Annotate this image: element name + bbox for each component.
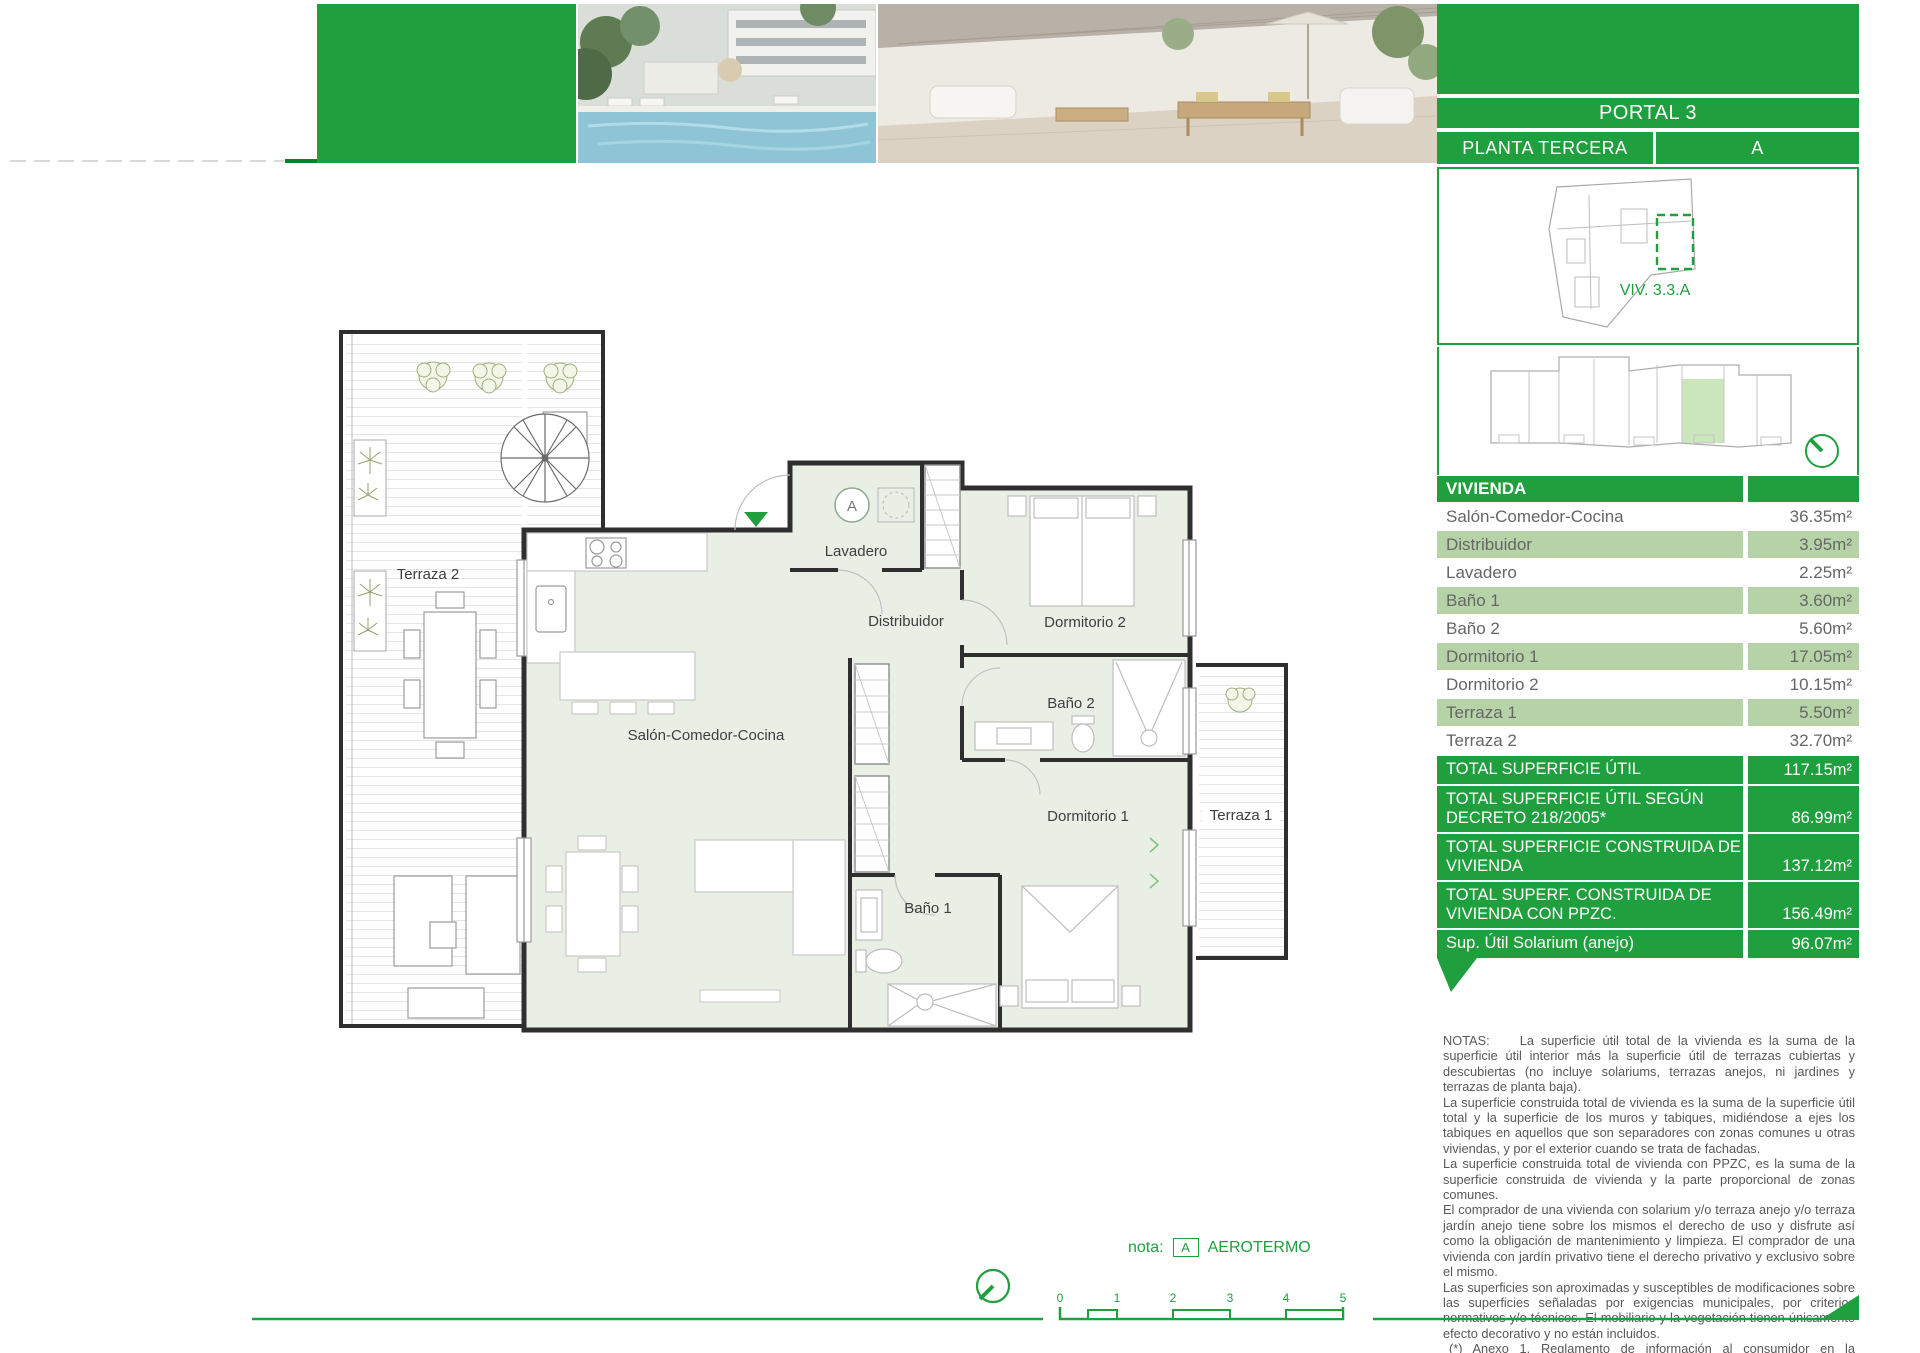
photo-pool-exterior [578, 4, 876, 163]
table-tail-shape [1437, 958, 1477, 992]
window [1183, 540, 1196, 926]
notes-paragraph: La superficie construida total de vivien… [1443, 1156, 1855, 1202]
floor-plan: A [330, 320, 1300, 1080]
label-salon: Salón-Comedor-Cocina [628, 727, 785, 744]
photo-window-row [736, 38, 866, 46]
total-label: TOTAL SUPERFICIE ÚTIL SEGÚN DECRETO 218/… [1437, 786, 1743, 832]
fine-print-cap [285, 159, 317, 163]
total-label: TOTAL SUPERF. CONSTRUIDA DE VIVIENDA CON… [1437, 882, 1743, 928]
key-plan [1439, 347, 1857, 475]
key-plan-balcony [1634, 437, 1654, 445]
photo-cushion [1196, 92, 1218, 102]
key-plan-balcony [1564, 435, 1584, 443]
row-label: Dormitorio 1 [1437, 643, 1743, 670]
table-row: Dormitorio 1 17.05m² [1437, 643, 1859, 670]
scale-bar [1060, 1307, 1343, 1319]
table-tail [1437, 958, 1497, 998]
sink-icon [536, 586, 566, 632]
photo-sofa [930, 86, 1016, 118]
brand-color-block [317, 4, 576, 163]
table-row: Dormitorio 2 10.15m² [1437, 671, 1859, 698]
aerotermo-box-icon: A [1173, 1238, 1199, 1257]
label-dormitorio2: Dormitorio 2 [1044, 614, 1126, 631]
row-label: Distribuidor [1437, 531, 1743, 558]
key-plan-highlight [1682, 379, 1724, 443]
label-distribuidor: Distribuidor [868, 613, 944, 630]
row-value: 36.35m² [1748, 503, 1859, 530]
planta-title: PLANTA TERCERA [1437, 132, 1653, 164]
viv-code: VIV. 3.3.A [1620, 282, 1691, 299]
row-value: 3.60m² [1748, 587, 1859, 614]
scale-ticks: 0 1 2 3 4 5 [1057, 1291, 1347, 1305]
terrace1-bush [1226, 688, 1255, 712]
notes-paragraph: La superficie construida total de vivien… [1443, 1095, 1855, 1157]
row-value: 5.50m² [1748, 699, 1859, 726]
photo-table [1056, 108, 1128, 121]
photo-lounger [608, 98, 632, 106]
photo-window-row [736, 56, 866, 64]
photo-cushion [1268, 92, 1290, 102]
scale-tick: 1 [1114, 1291, 1121, 1305]
scale-tick: 5 [1340, 1291, 1347, 1305]
table-row: Terraza 1 5.50m² [1437, 699, 1859, 726]
row-label: Terraza 1 [1437, 699, 1743, 726]
row-label: Dormitorio 2 [1437, 671, 1743, 698]
table-row: Salón-Comedor-Cocina 36.35m² [1437, 503, 1859, 530]
unit-letter: A [1656, 132, 1859, 164]
total-value: 96.07m² [1748, 930, 1859, 958]
row-value: 10.15m² [1748, 671, 1859, 698]
label-dormitorio1: Dormitorio 1 [1047, 808, 1129, 825]
nota-label: nota: [1128, 1239, 1164, 1257]
terrace-bush [417, 362, 577, 393]
spiral-stair [501, 412, 589, 502]
table-total-row: TOTAL SUPERFICIE ÚTIL SEGÚN DECRETO 218/… [1437, 786, 1859, 832]
scale-tick: 3 [1227, 1291, 1234, 1305]
aerotermo-text: AEROTERMO [1208, 1239, 1311, 1257]
photo-pool-water [578, 112, 876, 163]
notes-paragraph: NOTAS:La superficie útil total de la viv… [1443, 1033, 1855, 1095]
photo-pool-edge [578, 106, 876, 112]
photo-umbrella [718, 58, 742, 82]
table-total-row: TOTAL SUPERFICIE ÚTIL 117.15m² [1437, 756, 1859, 784]
unit-locator-box: VIV. 3.3.A [1437, 167, 1859, 345]
mini-building-outline [1549, 179, 1695, 327]
north-needle [980, 1286, 993, 1299]
photo-plant [1162, 18, 1194, 50]
north-needle [1810, 439, 1822, 451]
table-row: Terraza 2 32.70m² [1437, 727, 1859, 754]
total-label: TOTAL SUPERFICIE ÚTIL [1437, 756, 1743, 784]
key-plan-outline [1491, 357, 1791, 447]
photo-palm [620, 6, 660, 46]
total-label: Sup. Útil Solarium (anejo) [1437, 930, 1743, 958]
page: PORTAL 3 PLANTA TERCERA A VIV. 3.3.A [0, 0, 1920, 1353]
row-value: 2.25m² [1748, 559, 1859, 586]
tv-bench [700, 990, 780, 1002]
key-plan-area [1437, 347, 1859, 475]
panel-header-band [1437, 4, 1859, 94]
table-total-row: TOTAL SUPERF. CONSTRUIDA DE VIVIENDA CON… [1437, 882, 1859, 928]
aerotermo-note: nota: A AEROTERMO [1128, 1238, 1311, 1257]
row-label: Terraza 2 [1437, 727, 1743, 754]
row-value: 32.70m² [1748, 727, 1859, 754]
total-label: TOTAL SUPERFICIE CONSTRUIDA DE VIVIENDA [1437, 834, 1743, 880]
notes-label: NOTAS: [1443, 1033, 1490, 1048]
table-row: Baño 2 5.60m² [1437, 615, 1859, 642]
table-total-row: TOTAL SUPERFICIE CONSTRUIDA DE VIVIENDA … [1437, 834, 1859, 880]
label-bano2: Baño 2 [1047, 695, 1095, 712]
table-title-row: VIVIENDA [1437, 476, 1859, 502]
label-terraza1: Terraza 1 [1210, 807, 1273, 824]
row-label: Salón-Comedor-Cocina [1437, 503, 1743, 530]
row-label: Baño 2 [1437, 615, 1743, 642]
row-label: Lavadero [1437, 559, 1743, 586]
entrance-arrow-icon [744, 512, 768, 527]
scale-tick: 2 [1170, 1291, 1177, 1305]
row-value: 5.60m² [1748, 615, 1859, 642]
photo-lounger [774, 96, 798, 104]
row-value: 17.05m² [1748, 643, 1859, 670]
table-title: VIVIENDA [1437, 476, 1743, 502]
photo-window-row [736, 20, 866, 28]
table-row: Lavadero 2.25m² [1437, 559, 1859, 586]
photo-pavilion [644, 62, 718, 94]
label-lavadero: Lavadero [825, 543, 888, 560]
notes-text: La superficie útil total de la vivienda … [1443, 1033, 1855, 1094]
bed-double-dorm2 [1008, 496, 1156, 606]
total-value: 117.15m² [1748, 756, 1859, 784]
table-row: Baño 1 3.60m² [1437, 587, 1859, 614]
table-row: Distribuidor 3.95m² [1437, 531, 1859, 558]
label-bano1: Baño 1 [904, 900, 952, 917]
total-value: 156.49m² [1748, 882, 1859, 928]
portal-title: PORTAL 3 [1437, 98, 1859, 128]
footer-corner-triangle [1820, 1295, 1859, 1320]
fine-print-line [10, 160, 284, 162]
unit-locator-plan: VIV. 3.3.A [1439, 169, 1857, 341]
total-value: 137.12m² [1748, 834, 1859, 880]
key-plan-balcony [1499, 435, 1519, 443]
terrace-dining-table [404, 592, 496, 758]
photo-lounger [640, 98, 664, 106]
photo-bench [1178, 102, 1310, 118]
aerotermo-letter: A [847, 498, 857, 515]
total-value: 86.99m² [1748, 786, 1859, 832]
footer-graphics: 0 1 2 3 4 5 [0, 1230, 1920, 1353]
row-label: Baño 1 [1437, 587, 1743, 614]
photo-sofa [1340, 88, 1414, 124]
table-title-spacer [1748, 476, 1859, 502]
label-terraza2: Terraza 2 [397, 566, 460, 583]
photo-terrace-interior [878, 4, 1437, 163]
row-value: 3.95m² [1748, 531, 1859, 558]
scale-tick: 4 [1283, 1291, 1290, 1305]
table-total-row: Sup. Útil Solarium (anejo) 96.07m² [1437, 930, 1859, 958]
terrace-lounge [394, 876, 520, 1018]
scale-tick: 0 [1057, 1291, 1064, 1305]
